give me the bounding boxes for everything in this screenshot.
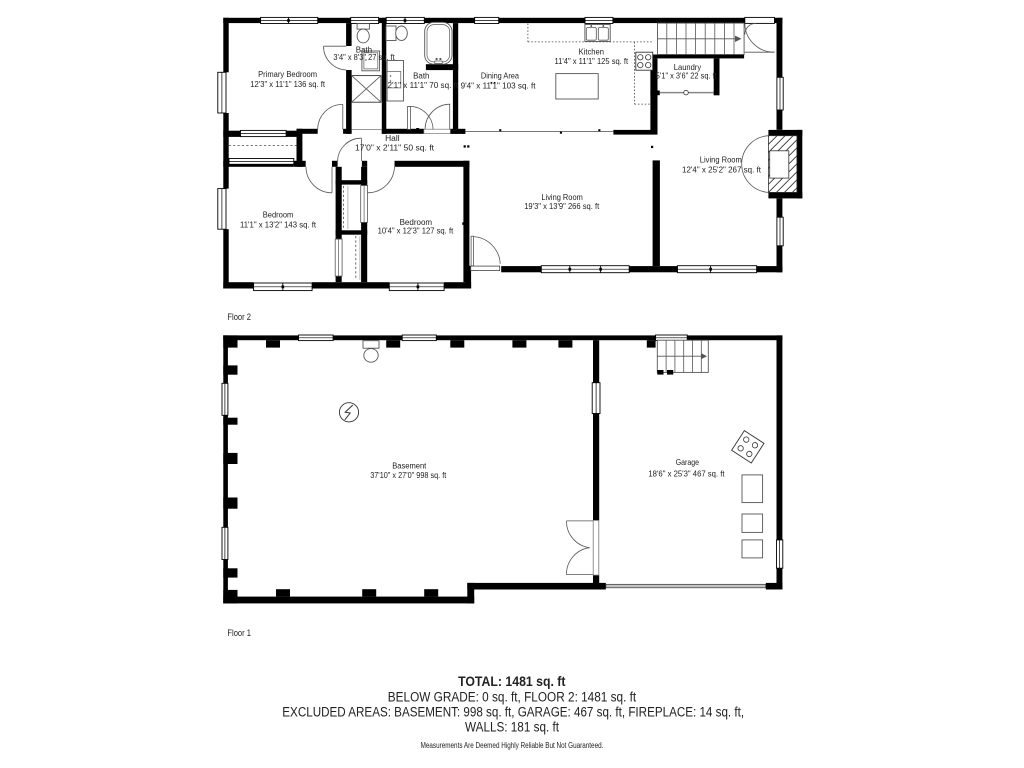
svg-text:TOTAL: 1481 sq. ft: TOTAL: 1481 sq. ft <box>458 674 566 690</box>
svg-text:Hall: Hall <box>385 133 400 143</box>
svg-text:WALLS: 181 sq. ft: WALLS: 181 sq. ft <box>465 720 559 736</box>
svg-text:17'0" x 2'11" 50 sq. ft: 17'0" x 2'11" 50 sq. ft <box>355 143 435 153</box>
svg-text:19'3" x 13'9" 266 sq. ft: 19'3" x 13'9" 266 sq. ft <box>524 201 600 211</box>
svg-text:5'1" x 3'6" 22 sq. ft: 5'1" x 3'6" 22 sq. ft <box>656 71 717 81</box>
svg-text:Bedroom: Bedroom <box>263 210 294 220</box>
svg-text:Basement: Basement <box>392 460 427 470</box>
svg-text:Dining Area: Dining Area <box>481 71 519 81</box>
svg-text:3'4" x 8'3" 27 sq. ft: 3'4" x 8'3" 27 sq. ft <box>333 52 395 62</box>
svg-text:9'4" x 11'1" 103 sq. ft: 9'4" x 11'1" 103 sq. ft <box>461 80 536 90</box>
svg-text:18'6" x 25'3" 467 sq. ft: 18'6" x 25'3" 467 sq. ft <box>648 469 725 479</box>
svg-text:Floor 2: Floor 2 <box>227 311 251 322</box>
svg-text:Bath: Bath <box>413 70 430 80</box>
svg-text:EXCLUDED AREAS: BASEMENT: 998: EXCLUDED AREAS: BASEMENT: 998 sq. ft, GA… <box>282 704 744 720</box>
svg-text:11'4" x 11'1" 125 sq. ft: 11'4" x 11'1" 125 sq. ft <box>555 56 629 66</box>
svg-text:37'10" x 27'0" 998 sq. ft: 37'10" x 27'0" 998 sq. ft <box>370 470 447 480</box>
svg-text:12'3" x 11'1" 136 sq. ft: 12'3" x 11'1" 136 sq. ft <box>250 79 325 89</box>
svg-text:Garage: Garage <box>676 457 700 467</box>
svg-text:Primary Bedroom: Primary Bedroom <box>258 69 317 79</box>
svg-text:Floor 1: Floor 1 <box>227 627 251 638</box>
svg-text:10'4" x 12'3" 127 sq. ft: 10'4" x 12'3" 127 sq. ft <box>378 226 454 236</box>
svg-text:11'1" x 13'2" 143 sq. ft: 11'1" x 13'2" 143 sq. ft <box>240 220 317 230</box>
svg-text:12'4" x 25'2" 267 sq. ft: 12'4" x 25'2" 267 sq. ft <box>682 165 762 175</box>
svg-text:2'1" x 11'1" 70 sq. ft: 2'1" x 11'1" 70 sq. ft <box>388 80 459 90</box>
svg-text:Measurements Are Deemed Highly: Measurements Are Deemed Highly Reliable … <box>421 741 604 750</box>
svg-text:BELOW GRADE: 0 sq. ft, FLOOR 2: BELOW GRADE: 0 sq. ft, FLOOR 2: 1481 sq.… <box>388 689 636 705</box>
svg-text:Living Room: Living Room <box>700 154 742 164</box>
